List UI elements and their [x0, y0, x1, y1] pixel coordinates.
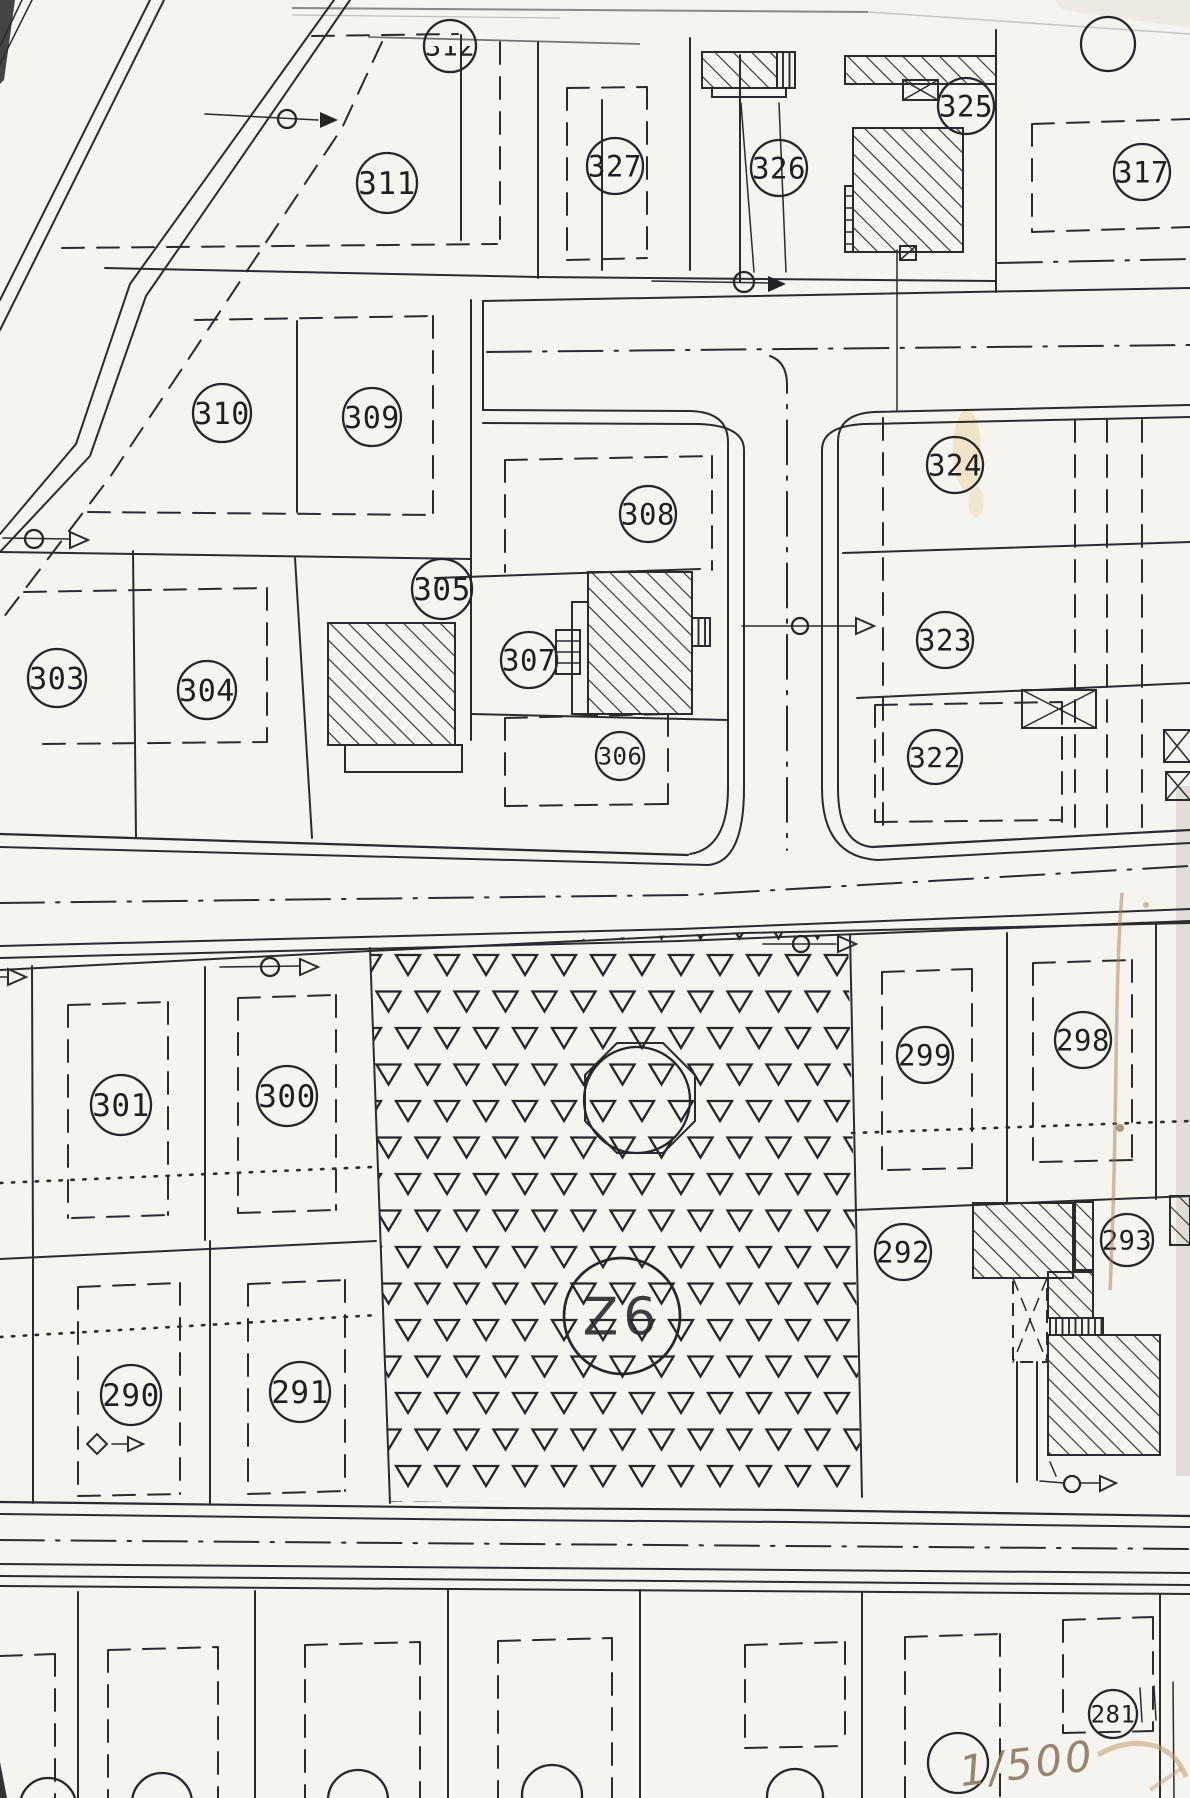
parcel-label-290: 290: [101, 1365, 161, 1425]
svg-text:324: 324: [928, 448, 982, 482]
survey-point-arrow-icon: [652, 272, 786, 292]
svg-text:304: 304: [179, 674, 235, 709]
map-frame-top-line: [292, 8, 868, 12]
svg-text:281: 281: [1091, 1701, 1136, 1729]
svg-text:308: 308: [621, 497, 675, 531]
parcel-label-326: 326: [751, 140, 807, 196]
building-hatched: [328, 623, 455, 745]
building-hatched: [1048, 1272, 1093, 1318]
building-hatched: [1075, 1202, 1093, 1270]
cadastral-map-canvas: 3123113273263253173103093083243053033043…: [0, 0, 1190, 1798]
svg-text:312: 312: [425, 32, 475, 63]
parcel-label-309: 309: [343, 388, 401, 446]
svg-text:309: 309: [344, 401, 400, 436]
parcel-label-325: 325: [938, 78, 994, 134]
crossed-box-icon: [1022, 690, 1096, 728]
parcel-label-317: 317: [1114, 144, 1170, 200]
parcel-label-292: 292: [875, 1224, 931, 1280]
parcel-label-281: 281: [1089, 1690, 1137, 1738]
svg-text:311: 311: [358, 166, 416, 202]
parcel-label-322: 322: [908, 730, 962, 784]
crossed-box-dashed-icon: [1013, 1278, 1047, 1362]
parcel-label-307: 307: [501, 632, 557, 688]
parcel-label-298: 298: [1055, 1012, 1111, 1068]
svg-text:325: 325: [939, 89, 993, 123]
survey-point-arrow-icon: [742, 618, 874, 634]
svg-text:322: 322: [909, 741, 961, 774]
unlabeled-parcel-circle: [1081, 17, 1135, 71]
parcel-label-301: 301: [91, 1075, 151, 1135]
parcel-label-308: 308: [620, 486, 676, 542]
svg-text:303: 303: [29, 662, 85, 697]
survey-point-arrow-icon: [220, 958, 318, 976]
scanned-cadastral-plan: 3123113273263253173103093083243053033043…: [0, 0, 1190, 1798]
page-edge-shadow: [1176, 786, 1190, 1476]
triangle-zone: [370, 932, 861, 1503]
parcel-label-305: 305: [412, 559, 472, 619]
scan-edge-sliver: [0, 1762, 7, 1798]
parcel-label-327: 327: [587, 138, 643, 194]
svg-text:301: 301: [92, 1088, 150, 1124]
building-outline: [712, 88, 786, 97]
parcel-label-293: 293: [1101, 1214, 1153, 1266]
survey-point-arrow-icon: [0, 969, 26, 985]
parcel-label-312: 312: [424, 20, 476, 72]
svg-text:298: 298: [1056, 1023, 1110, 1057]
road-centerline: [770, 356, 787, 850]
svg-text:300: 300: [258, 1079, 316, 1115]
stairs-icon: [556, 630, 580, 674]
parcel-label-323: 323: [917, 612, 973, 668]
svg-text:299: 299: [898, 1038, 952, 1072]
handwriting-layer: 1/500: [956, 1731, 1186, 1796]
road-centerline: [487, 345, 1190, 352]
triangle-vegetation-pattern: [370, 932, 861, 1502]
parcel-label-303: 303: [28, 649, 86, 707]
building-hatched: [853, 128, 963, 252]
svg-text:Z6: Z6: [583, 1288, 662, 1348]
survey-point-arrow-icon: [3, 530, 88, 548]
svg-text:323: 323: [918, 623, 972, 657]
svg-text:326: 326: [752, 151, 806, 185]
crossed-box-icon: [1164, 730, 1190, 762]
parcel-label-311: 311: [357, 153, 417, 213]
building-hatched: [588, 572, 692, 714]
building-striped: [777, 52, 795, 88]
lot-lines: [0, 30, 1190, 1798]
map-frame-top-line: [292, 15, 560, 18]
building-hatched: [973, 1203, 1073, 1278]
stain-dot: [1143, 902, 1149, 908]
survey-point-arrow-icon: [1040, 1462, 1116, 1492]
building-hatched: [1048, 1335, 1160, 1455]
svg-text:306: 306: [598, 743, 643, 771]
svg-text:317: 317: [1115, 155, 1169, 189]
svg-text:291: 291: [271, 1375, 329, 1411]
svg-text:292: 292: [876, 1235, 930, 1269]
svg-text:310: 310: [194, 397, 250, 432]
parcel-label-304: 304: [178, 661, 236, 719]
building-outline: [345, 745, 462, 772]
road-centerline: [0, 1540, 1190, 1549]
stairs-icon: [692, 618, 710, 646]
stain: [968, 487, 984, 517]
svg-text:327: 327: [588, 149, 642, 183]
svg-text:293: 293: [1102, 1226, 1152, 1257]
parcel-label-299: 299: [897, 1027, 953, 1083]
road-centerline: [0, 866, 1190, 903]
svg-text:290: 290: [102, 1378, 160, 1414]
partial-parcel-circles: [20, 1733, 988, 1798]
parcel-label-300: 300: [257, 1066, 317, 1126]
map-frame-top-line: [368, 37, 640, 44]
pencil-scribble: [1150, 1768, 1182, 1790]
stairs-icon: [1050, 1318, 1103, 1335]
svg-text:305: 305: [413, 572, 471, 608]
parcel-label-310: 310: [193, 384, 251, 442]
paper-fold: [1055, 0, 1190, 28]
road-b: [0, 1502, 1190, 1585]
building-hatched: [702, 52, 777, 88]
stain-dot: [1116, 1124, 1124, 1132]
parcel-label-306: 306: [596, 732, 644, 780]
svg-text:307: 307: [502, 643, 556, 677]
diamond-marker-icon: [87, 1434, 143, 1454]
parcel-label-291: 291: [270, 1362, 330, 1422]
building-annex: [845, 186, 853, 252]
building-hatched: [1170, 1196, 1190, 1245]
